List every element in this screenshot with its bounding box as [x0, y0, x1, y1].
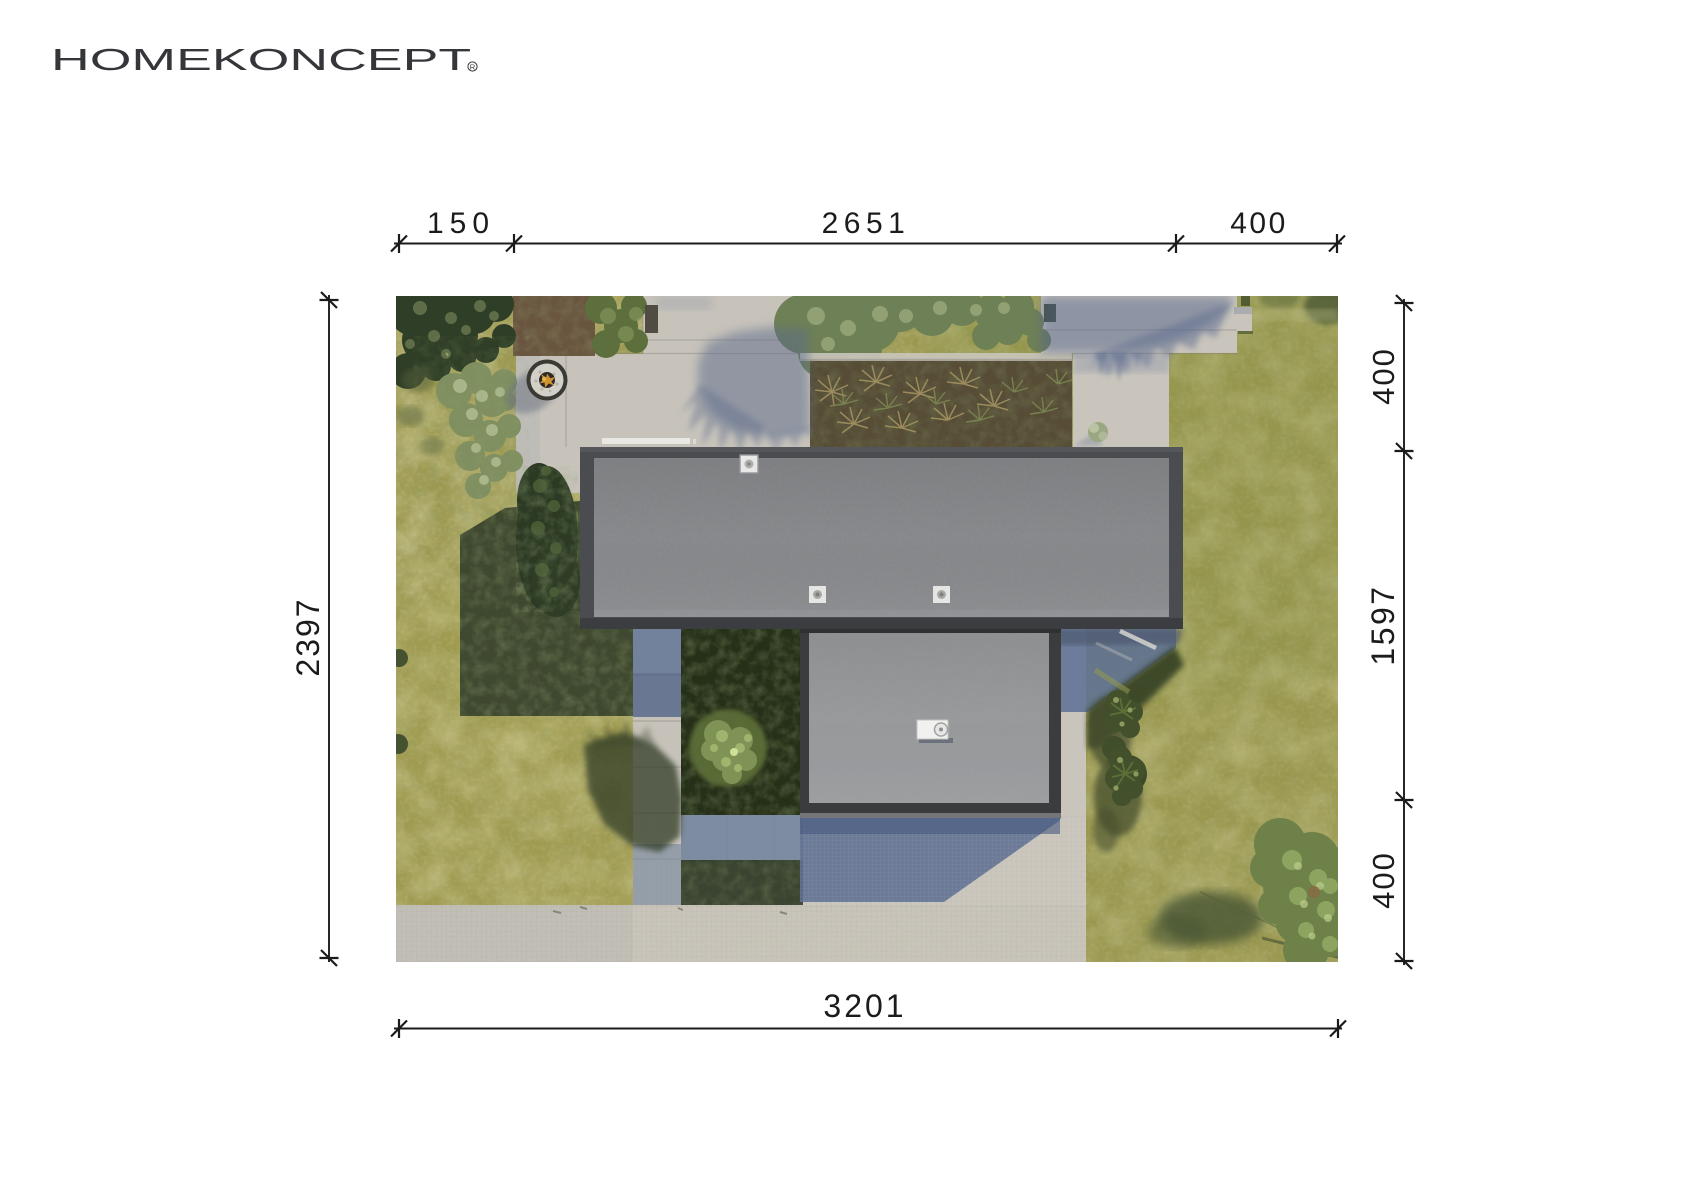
svg-text:HOMEKONCEPT: HOMEKONCEPT — [51, 42, 471, 77]
svg-text:400: 400 — [1366, 347, 1401, 405]
svg-text:1597: 1597 — [1365, 584, 1401, 665]
svg-text:400: 400 — [1230, 207, 1288, 240]
svg-text:R: R — [470, 62, 476, 71]
svg-text:400: 400 — [1366, 851, 1401, 909]
svg-text:3201: 3201 — [823, 988, 906, 1024]
svg-text:150: 150 — [427, 207, 495, 240]
svg-text:2397: 2397 — [290, 597, 326, 676]
svg-text:2651: 2651 — [822, 207, 911, 240]
